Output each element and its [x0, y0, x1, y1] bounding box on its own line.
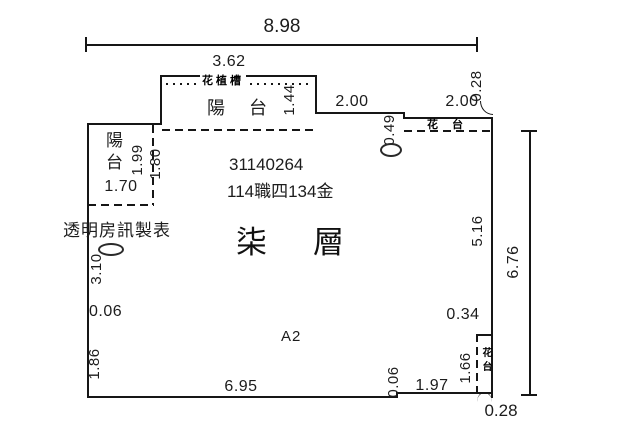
floor-plan: 8.98 3.62 花植槽 陽台 1.44 2.00 2.00 0.49 花台 … — [0, 0, 640, 442]
planter-label: 花植槽 — [200, 72, 246, 88]
flower-stand-br-top — [476, 334, 493, 336]
wall-bottom-main — [87, 396, 398, 398]
dim-line-top — [85, 44, 477, 46]
wall-balcony-right — [315, 75, 317, 114]
dim-bottom-flower-stand-width: 0.34 — [439, 306, 487, 324]
dim-bottom-flower-stand-height: 1.66 — [458, 348, 474, 388]
leader-arc-top-right — [480, 101, 493, 115]
dim-top-flower-stand-depth: 0.28 — [469, 66, 485, 106]
registration-number: 114職四134金 — [227, 177, 333, 202]
balcony-left-label: 陽台 — [106, 130, 126, 174]
dim-left-balcony-depth-inner: 1.80 — [148, 144, 164, 184]
floor-label: 柒層 — [236, 217, 390, 262]
flower-stand-tr-label: 花台 — [427, 116, 477, 132]
wall-top-left — [87, 123, 162, 125]
dim-tick-top-left — [85, 37, 87, 52]
dim-bottom-wall-main: 6.95 — [217, 378, 265, 396]
dim-top-wall-left: 2.00 — [322, 93, 382, 111]
flower-stand-br-label: 花台 — [478, 347, 493, 389]
dim-left-wall-upper: 3.10 — [89, 249, 105, 289]
dim-bottom-wall-step: 0.06 — [386, 362, 402, 402]
dim-top-balcony-depth: 1.44 — [282, 80, 298, 120]
wall-balcony-left — [160, 75, 162, 125]
dim-bottom-wall-right: 1.97 — [406, 377, 458, 395]
dim-top-balcony-width: 3.62 — [201, 53, 257, 71]
dim-left-wall-step: 0.06 — [89, 303, 122, 321]
dim-bottom-flower-stand-depth: 0.28 — [477, 401, 525, 421]
dim-tick-right-bottom — [521, 394, 537, 396]
watermark-oval-right — [380, 143, 402, 157]
unit-number: 31140264 — [229, 155, 303, 175]
dim-left-balcony-width: 1.70 — [97, 178, 145, 196]
dim-total-height: 6.76 — [506, 237, 522, 287]
dim-right-wall-inner: 5.16 — [470, 211, 486, 251]
dim-total-width: 8.98 — [252, 16, 312, 38]
balcony-top-label: 陽台 — [207, 94, 291, 120]
zone-label: A2 — [281, 328, 301, 345]
balcony-left-dashed-bottom — [88, 204, 154, 206]
dim-tick-top-right — [476, 37, 478, 52]
edge-balcony-bottom-dashed — [162, 129, 315, 131]
dim-left-wall-lower: 1.86 — [87, 344, 103, 384]
dim-left-balcony-depth-outer: 1.99 — [130, 140, 146, 180]
dim-tick-right-top — [521, 130, 537, 132]
watermark-text: 透明房訊製表 — [63, 216, 171, 241]
dim-line-right — [529, 130, 531, 395]
